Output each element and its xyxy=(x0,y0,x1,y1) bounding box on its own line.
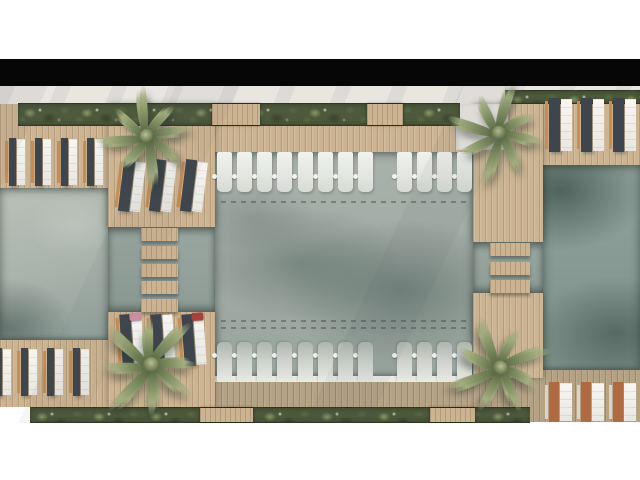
pool-lounger xyxy=(298,342,313,382)
pool-lounger xyxy=(338,152,353,192)
letterbox-bar xyxy=(0,59,640,86)
pool-lounger xyxy=(457,152,472,192)
lounger-shade xyxy=(613,98,624,152)
sun-lounger xyxy=(57,138,77,186)
planter-wood-box xyxy=(367,104,403,125)
lounger-wood-frame xyxy=(57,141,60,183)
lounger-row-bottom-right xyxy=(545,382,637,422)
lounger-wood-frame xyxy=(577,385,580,419)
planter-wood-box xyxy=(212,104,260,125)
pool-lounger xyxy=(257,342,272,382)
lounger-shade xyxy=(581,382,591,422)
sun-lounger xyxy=(577,98,604,152)
lounger-cushion xyxy=(29,349,37,395)
lounger-wood-frame xyxy=(609,101,612,149)
pool-plan-render xyxy=(0,0,640,480)
lounger-wood-frame xyxy=(83,141,86,183)
pool-lounger xyxy=(298,152,313,192)
bridge-plank xyxy=(490,262,530,275)
sun-lounger xyxy=(545,382,573,422)
sun-lounger xyxy=(43,348,63,396)
lounger-group xyxy=(217,152,373,193)
sun-lounger xyxy=(176,159,209,214)
lounger-cushion xyxy=(624,383,636,421)
lounger-wood-frame xyxy=(43,351,46,393)
lounger-wood-frame xyxy=(5,141,8,183)
lounger-row-top-platform xyxy=(117,160,206,212)
sun-lounger xyxy=(17,348,37,396)
planter-wood-box xyxy=(200,408,253,422)
bridge-plank xyxy=(141,246,178,259)
bridge-plank xyxy=(141,228,178,241)
lounger-wood-frame xyxy=(545,385,548,419)
pool-lounger xyxy=(318,152,333,192)
sun-lounger xyxy=(31,138,51,186)
pool-tile-line xyxy=(221,320,467,322)
pool-lounger xyxy=(417,152,432,192)
planter-strip-bottom xyxy=(30,407,530,423)
bridge-plank xyxy=(490,243,530,256)
jetty-bridge-right xyxy=(490,243,530,293)
lounger-wood-frame xyxy=(69,351,72,393)
bridge-plank xyxy=(141,299,178,312)
pool-lounger xyxy=(237,342,252,382)
bridge-plank xyxy=(141,264,178,277)
pool-lounger xyxy=(237,152,252,192)
lounger-shade xyxy=(47,348,54,396)
towel-red xyxy=(191,312,204,321)
bridge-plank xyxy=(490,280,530,293)
sun-lounger xyxy=(609,382,637,422)
lounger-cushion xyxy=(55,349,63,395)
sun-lounger xyxy=(545,98,572,152)
pool-lounger xyxy=(397,342,412,382)
sun-lounger xyxy=(609,98,636,152)
pool-tile-line xyxy=(221,201,467,203)
pool-lounger xyxy=(338,342,353,382)
lounger-cushion xyxy=(561,99,572,151)
pool-lounger xyxy=(437,342,452,382)
bridge-plank xyxy=(141,281,178,294)
lounger-cushion xyxy=(193,314,206,365)
lounger-shade xyxy=(549,98,560,152)
pool-lounger xyxy=(257,152,272,192)
lounger-row-top-left xyxy=(5,138,103,186)
pool-lounger xyxy=(277,152,292,192)
sun-lounger xyxy=(69,348,89,396)
lounger-shade xyxy=(549,382,559,422)
swimming-pool-right xyxy=(543,165,640,370)
lounger-cushion xyxy=(17,139,25,185)
pool-lounger xyxy=(318,342,333,382)
lounger-row-bottom-left xyxy=(0,348,89,396)
lounger-cushion xyxy=(43,139,51,185)
lounger-wood-frame xyxy=(17,351,20,393)
sun-lounger xyxy=(5,138,25,186)
lounger-shade xyxy=(35,138,42,186)
pool-tile-line xyxy=(221,327,467,329)
pool-lounger xyxy=(397,152,412,192)
lounger-shade xyxy=(21,348,28,396)
swimming-pool-left xyxy=(0,188,108,340)
lounger-shade xyxy=(613,382,623,422)
sun-lounger xyxy=(0,348,11,396)
lounger-group xyxy=(217,342,373,383)
lounger-wood-frame xyxy=(577,101,580,149)
lounger-wood-frame xyxy=(31,141,34,183)
letterbox-top xyxy=(0,0,640,59)
towel-pink xyxy=(129,312,142,321)
lounger-cushion xyxy=(625,99,636,151)
pool-lounger xyxy=(277,342,292,382)
planter-strip-top xyxy=(18,103,460,126)
inpool-lounger-row-bottom xyxy=(215,342,473,383)
pool-lounger xyxy=(217,152,232,192)
lounger-cushion xyxy=(592,383,604,421)
lounger-group xyxy=(397,152,472,193)
lounger-shade xyxy=(73,348,80,396)
pool-lounger xyxy=(437,152,452,192)
lounger-shade xyxy=(581,98,592,152)
lounger-wood-frame xyxy=(609,385,612,419)
palm-crown-center xyxy=(140,129,154,143)
lounger-cushion xyxy=(69,139,77,185)
lounger-cushion xyxy=(81,349,89,395)
pool-lounger xyxy=(358,152,373,192)
lounger-shade xyxy=(0,348,2,396)
lounger-cushion xyxy=(3,349,11,395)
lounger-cushion xyxy=(593,99,604,151)
planter-wood-box xyxy=(430,408,475,422)
lounger-shade xyxy=(9,138,16,186)
lounger-row-top-right xyxy=(545,98,636,152)
jetty-bridge-left xyxy=(141,228,178,312)
lounger-cushion xyxy=(560,383,572,421)
pool-lounger xyxy=(358,342,373,382)
inpool-lounger-row-top xyxy=(215,152,473,193)
sun-lounger xyxy=(577,382,605,422)
pool-lounger xyxy=(417,342,432,382)
pool-lounger xyxy=(217,342,232,382)
letterbox-bottom xyxy=(0,423,640,480)
lounger-shade xyxy=(87,138,94,186)
lounger-shade xyxy=(61,138,68,186)
